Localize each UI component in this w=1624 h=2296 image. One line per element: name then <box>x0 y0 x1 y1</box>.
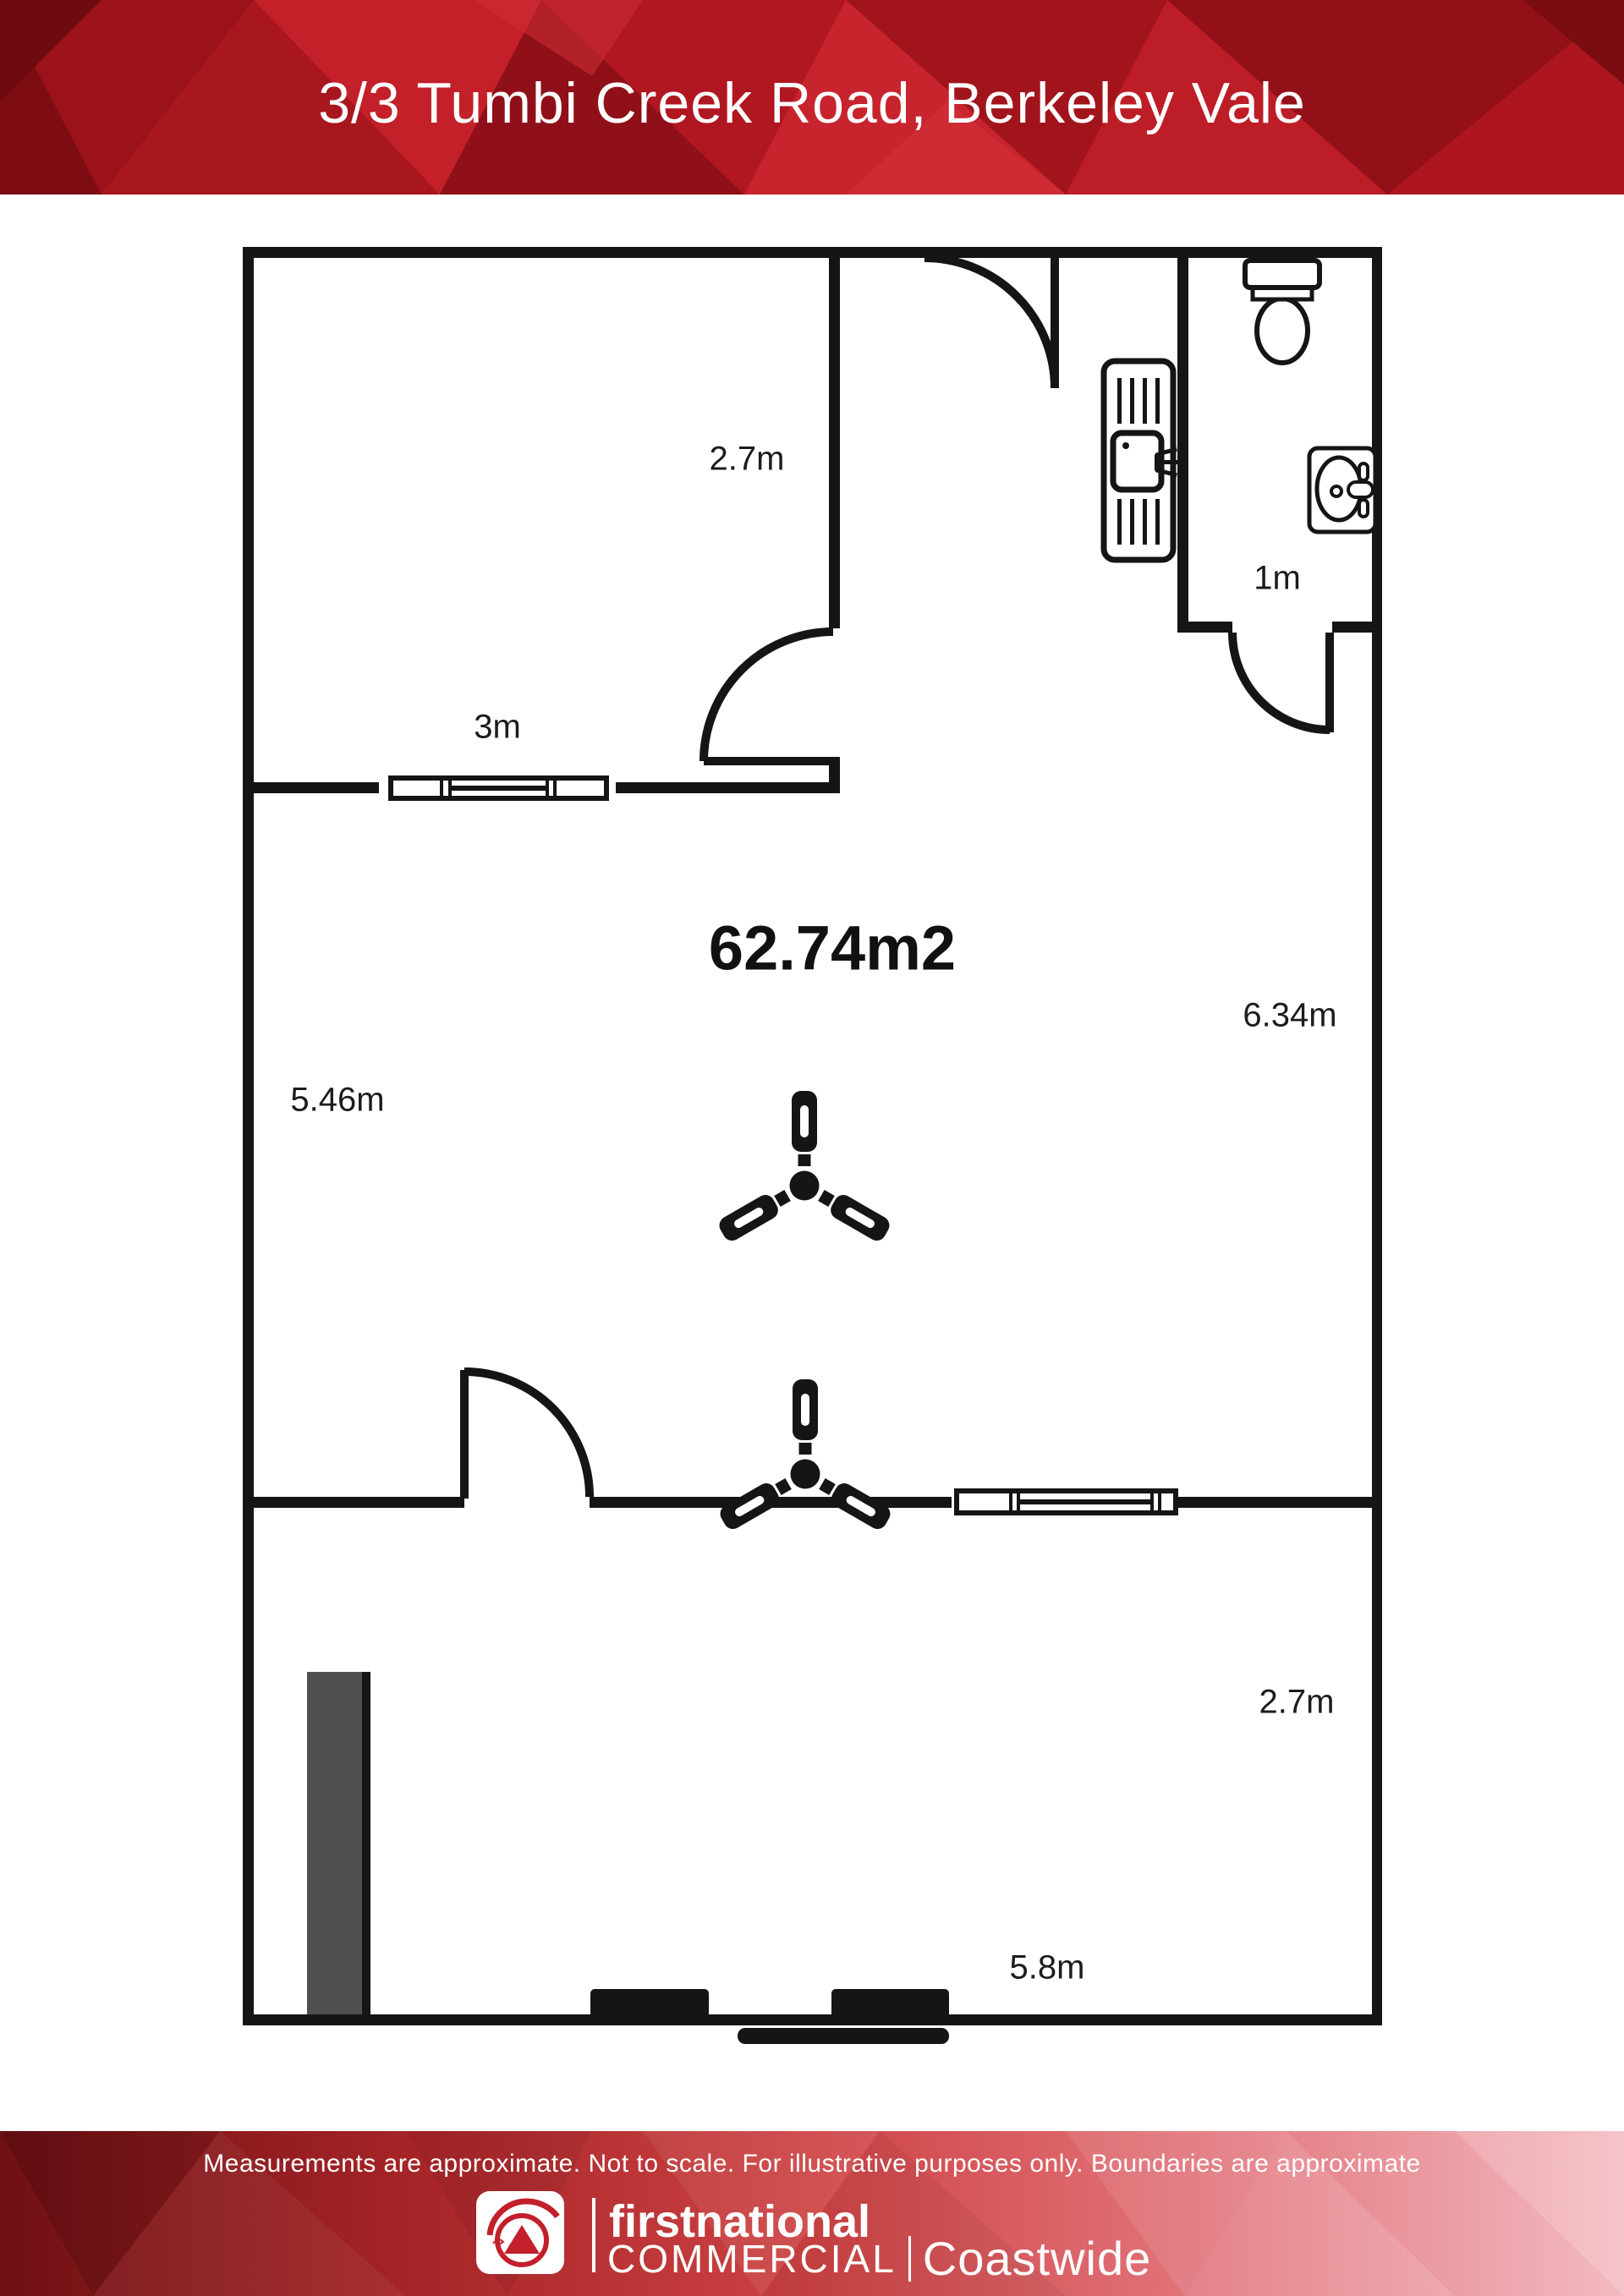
brand-row: COMMERCIAL Coastwide <box>607 2231 1151 2286</box>
middle-wall-door <box>460 1370 590 1499</box>
dimension-label-top-room-window: 3m <box>474 709 521 747</box>
brand-separator <box>908 2236 911 2282</box>
brand-commercial: COMMERCIAL <box>607 2236 897 2282</box>
dimension-label-main-room-width: 5.46m <box>290 1082 384 1120</box>
dimension-label-bottom-room-width: 5.8m <box>1010 1949 1085 1987</box>
top-room-door <box>704 632 840 765</box>
kitchen-sink-icon <box>1104 361 1177 560</box>
bathroom-door <box>1232 633 1334 732</box>
dimension-label-main-room-height: 6.34m <box>1243 997 1336 1035</box>
floorplan-drawing <box>0 0 1624 2296</box>
disclaimer-text: Measurements are approximate. Not to sca… <box>203 2150 1420 2178</box>
logo-divider <box>592 2198 595 2272</box>
first-national-logo-icon <box>476 2191 564 2274</box>
interior-walls <box>243 258 1382 1508</box>
brand-coastwide: Coastwide <box>923 2231 1151 2286</box>
floor-area-label: 62.74m2 <box>709 912 956 984</box>
dimension-label-bottom-room-height: 2.7m <box>1259 1684 1335 1722</box>
dimension-label-bathroom-width: 1m <box>1254 560 1301 598</box>
grey-column <box>307 1672 370 2014</box>
toilet-icon <box>1245 260 1319 363</box>
window-top-room <box>391 778 606 798</box>
dimension-label-top-room-width: 2.7m <box>710 441 785 479</box>
window-middle-wall <box>957 1491 1176 1513</box>
floorplan-page: 3/3 Tumbi Creek Road, Berkeley Vale <box>0 0 1624 2296</box>
entry-door <box>924 258 1059 388</box>
ceiling-fan-icon <box>717 1379 894 1532</box>
basin-icon <box>1309 448 1375 532</box>
ceiling-fan-icon <box>716 1091 893 1244</box>
